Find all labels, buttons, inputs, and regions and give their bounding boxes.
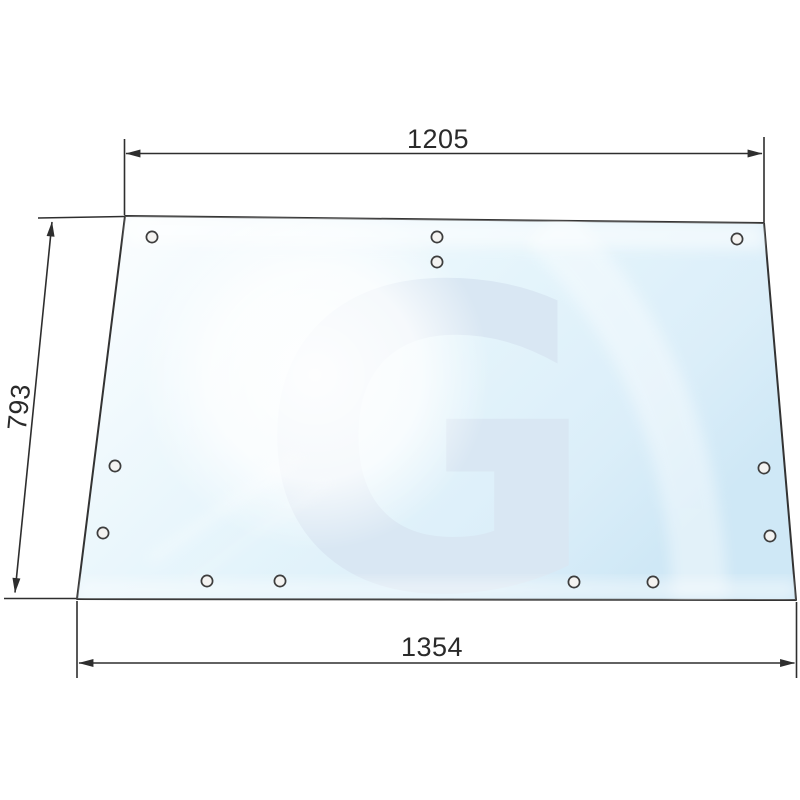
mounting-hole [97, 527, 108, 538]
dimension-label-top: 1205 [407, 124, 469, 154]
dimension-label-side: 793 [2, 382, 36, 431]
drawing-page: G 1205 793 [0, 0, 800, 800]
mounting-hole [274, 575, 285, 586]
mounting-hole [431, 256, 442, 267]
extension-line [38, 217, 124, 219]
mounting-hole [764, 530, 775, 541]
glare-blob [140, 200, 490, 550]
mounting-hole [568, 576, 579, 587]
mounting-hole [146, 231, 157, 242]
mounting-hole [758, 462, 769, 473]
mounting-hole [201, 575, 212, 586]
dimension-label-bottom: 1354 [401, 632, 463, 662]
mounting-hole [109, 460, 120, 471]
mounting-hole [731, 233, 742, 244]
mounting-hole [647, 576, 658, 587]
technical-drawing-canvas: G 1205 793 [0, 0, 800, 800]
mounting-hole [431, 231, 442, 242]
